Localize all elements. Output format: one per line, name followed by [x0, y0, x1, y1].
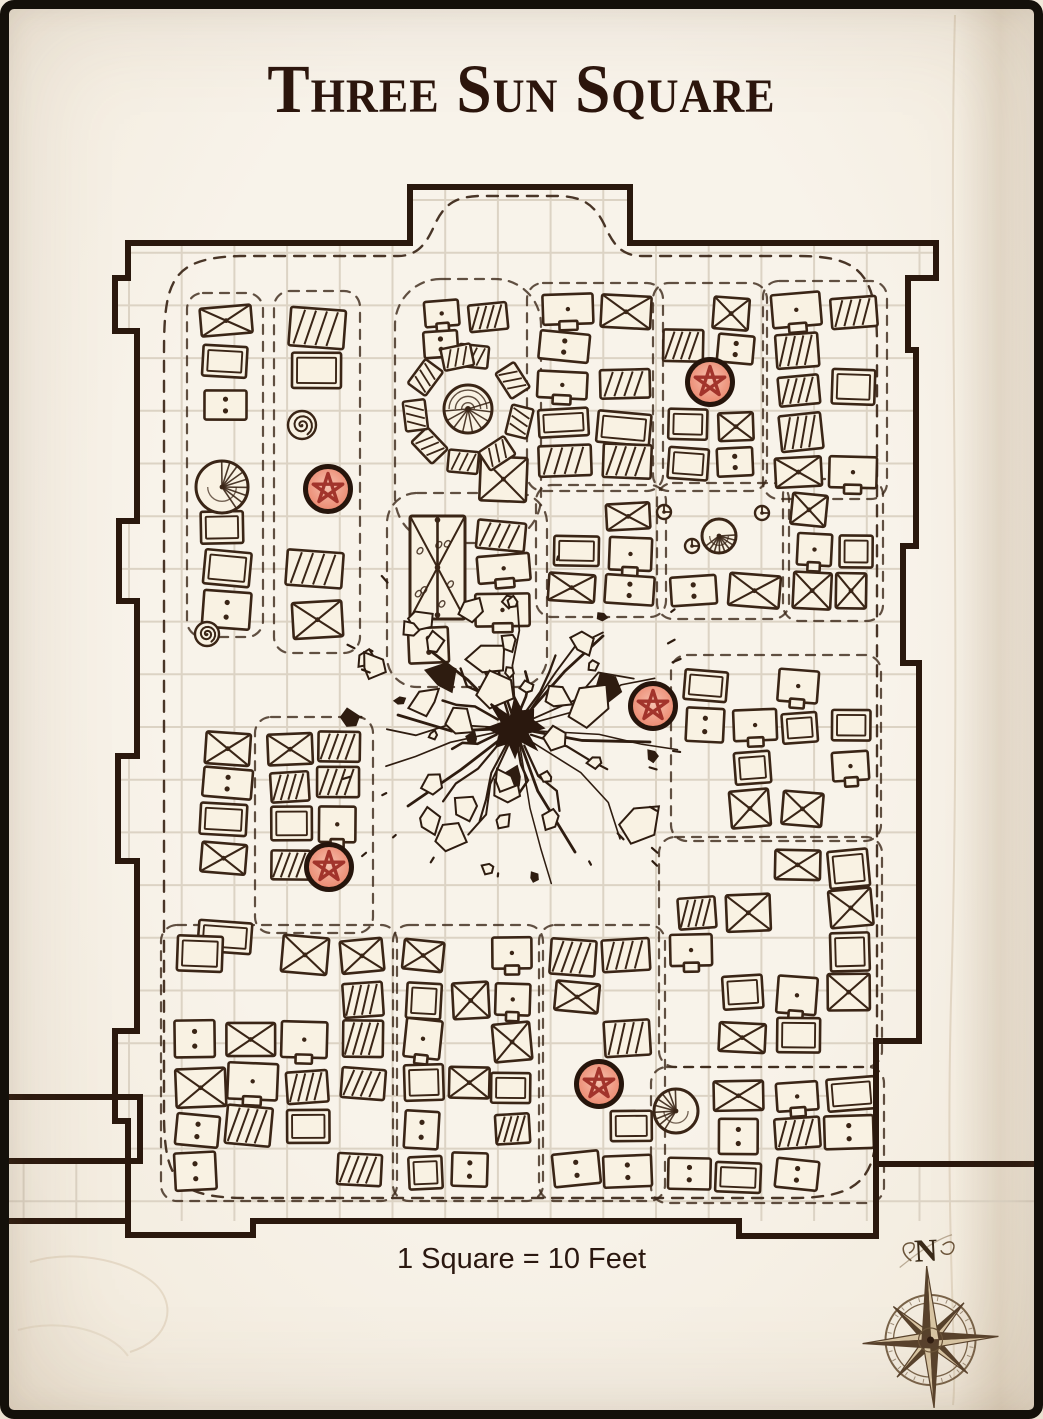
parchment-page: Three Sun Square 1 Square = 10 Feet N	[0, 0, 1043, 1419]
pentagram-marker	[688, 360, 733, 405]
compass-north-label: N	[913, 1232, 938, 1269]
town-map	[0, 0, 1043, 1419]
pentagram-marker	[306, 467, 351, 512]
pentagram-marker	[577, 1062, 622, 1107]
compass-rose: N	[855, 1230, 1005, 1415]
map-title: Three Sun Square	[21, 53, 1022, 128]
pentagram-marker	[307, 845, 352, 890]
pentagram-marker	[631, 684, 676, 729]
